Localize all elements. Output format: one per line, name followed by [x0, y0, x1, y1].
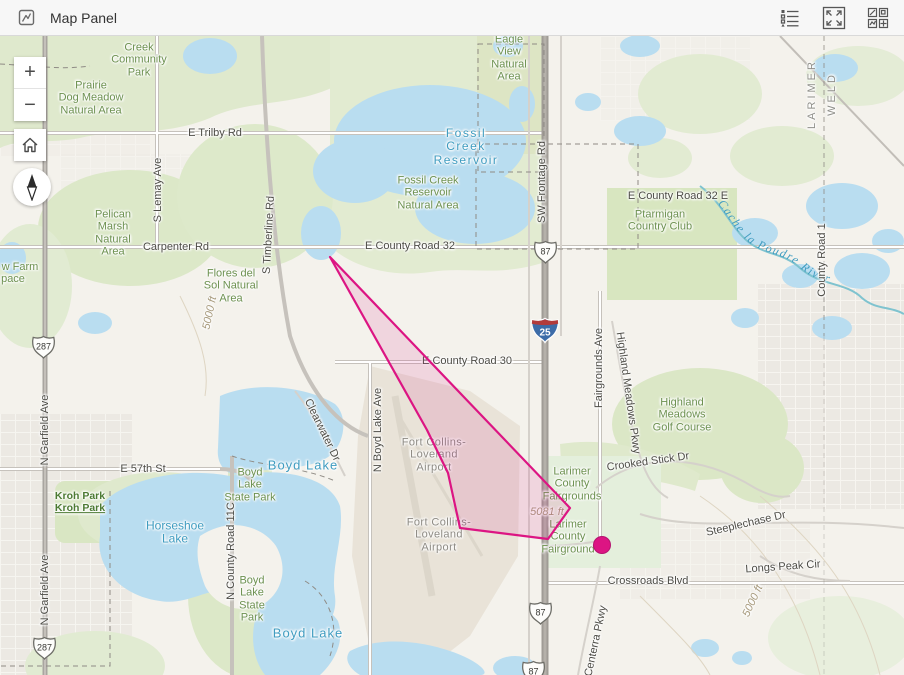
map-label: Carpenter Rd: [143, 241, 209, 253]
zoom-controls: + −: [14, 57, 46, 121]
map-label: County Road 1: [816, 223, 828, 296]
map-label: Kroh Park: [55, 503, 105, 515]
map-label: N Boyd Lake Ave: [372, 388, 384, 472]
map-label: PelicanMarshNaturalArea: [95, 208, 131, 257]
home-icon: [21, 136, 39, 154]
map-label: Longs Peak Cir: [745, 558, 821, 576]
map-label: Fairgrounds Ave: [593, 328, 605, 408]
map-label: PrairieDog MeadowNatural Area: [59, 80, 124, 117]
map-label: 5081 ft: [530, 506, 564, 518]
map-label: w Farm: [2, 261, 39, 273]
map-label: Centerra Pkwy: [582, 604, 609, 675]
map-label: E County Road 32 E: [628, 190, 728, 202]
map-label: HighlandMeadowsGolf Course: [653, 397, 712, 434]
compass-button[interactable]: [13, 168, 51, 206]
map-label: LARIMER: [806, 59, 818, 129]
map-label: Boyd Lake: [268, 459, 338, 474]
map-label: Highland Meadows Pkwy: [613, 331, 642, 454]
zoom-out-button[interactable]: −: [14, 89, 46, 121]
map-label: N Garfield Ave: [39, 555, 51, 626]
map-label: E 57th St: [120, 463, 165, 475]
map-label: Crossroads Blvd: [608, 575, 689, 587]
map-label: FossilCreekReservoir: [434, 127, 499, 167]
expand-icon[interactable]: [822, 6, 846, 30]
map-label: Fort Collins-LovelandAirport: [402, 437, 467, 474]
map-label: LarimerCountyFairgrounds: [543, 466, 602, 503]
legend-icon[interactable]: [778, 6, 802, 30]
map-label: HorseshoeLake: [146, 520, 204, 547]
map-canvas[interactable]: Cache la Poudre River 28728787878725 Cre…: [0, 36, 904, 675]
views-grid-icon[interactable]: [866, 6, 890, 30]
map-label: Fort Collins-LovelandAirport: [407, 517, 472, 554]
map-label: LarimerCountyFairground: [541, 519, 594, 556]
home-button[interactable]: [14, 129, 46, 161]
map-label: CreekCommunityPark: [111, 42, 167, 79]
map-label: S Lemay Ave: [152, 158, 164, 223]
map-label: Kroh Park: [55, 491, 105, 503]
map-label: N County Road 11C: [225, 502, 237, 600]
map-label: E County Road 32: [365, 240, 455, 252]
map-label: 5000 ft: [740, 583, 765, 619]
map-label: pace: [1, 273, 25, 285]
map-label: E County Road 30: [422, 355, 512, 367]
map-label: N Garfield Ave: [39, 395, 51, 466]
zoom-in-button[interactable]: +: [14, 57, 46, 89]
map-labels: CreekCommunityParkPrairieDog MeadowNatur…: [0, 36, 904, 675]
map-panel-icon: [14, 6, 38, 30]
map-label: E Trilby Rd: [188, 127, 242, 139]
map-label: Boyd Lake: [273, 627, 343, 642]
map-label: Steeplechase Dr: [705, 509, 787, 539]
map-label: S Timberline Rd: [261, 196, 277, 275]
page-title: Map Panel: [50, 10, 117, 26]
map-label: EagleViewNaturalArea: [491, 36, 526, 83]
map-label: BoydLakeStatePark: [239, 574, 265, 623]
map-label: WELD: [826, 72, 838, 116]
map-label: SW Frontage Rd: [536, 141, 548, 223]
map-panel-header: Map Panel: [0, 0, 904, 36]
map-label: Crooked Stick Dr: [606, 450, 690, 474]
compass-needle-icon: [21, 173, 43, 201]
map-label: Fossil CreekReservoirNatural Area: [397, 175, 458, 212]
map-label: Clearwater Dr: [302, 397, 343, 463]
map-label: PtarmiganCountry Club: [628, 209, 692, 234]
